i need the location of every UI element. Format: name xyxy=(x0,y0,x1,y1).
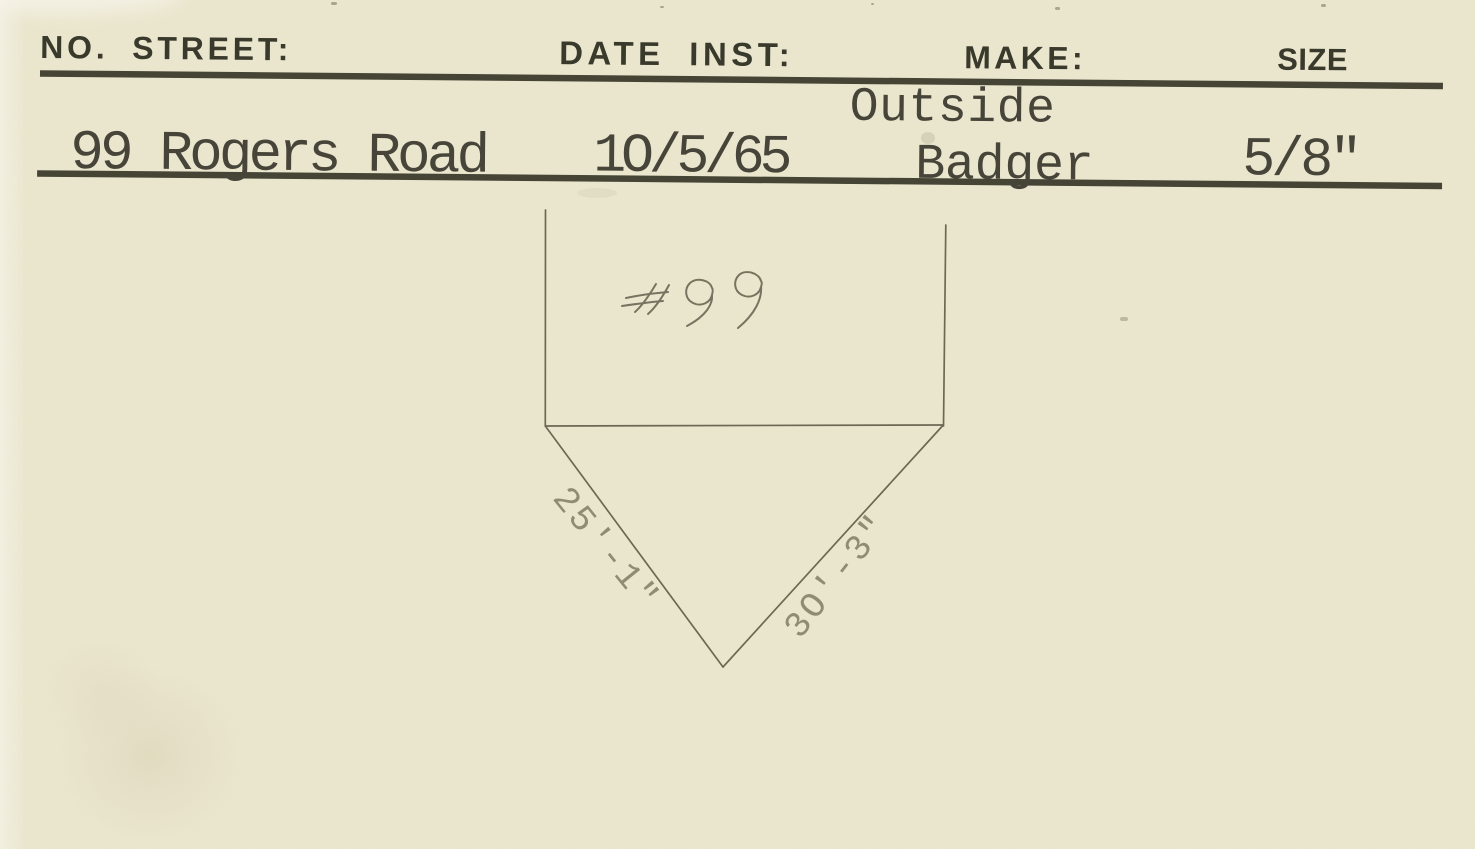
svg-text:NO. STREET:: NO. STREET: xyxy=(40,29,292,67)
svg-text:Badger: Badger xyxy=(915,137,1094,196)
svg-text:1O/5/65: 1O/5/65 xyxy=(593,125,790,190)
svg-text:SIZE: SIZE xyxy=(1277,42,1348,78)
svg-text:MAKE:: MAKE: xyxy=(964,39,1086,76)
svg-text:Outside: Outside xyxy=(849,81,1055,137)
svg-text:DATE INST:: DATE INST: xyxy=(559,34,794,73)
svg-text:5/8": 5/8" xyxy=(1242,128,1359,192)
svg-text:99 Rogers Road: 99 Rogers Road xyxy=(70,121,486,189)
